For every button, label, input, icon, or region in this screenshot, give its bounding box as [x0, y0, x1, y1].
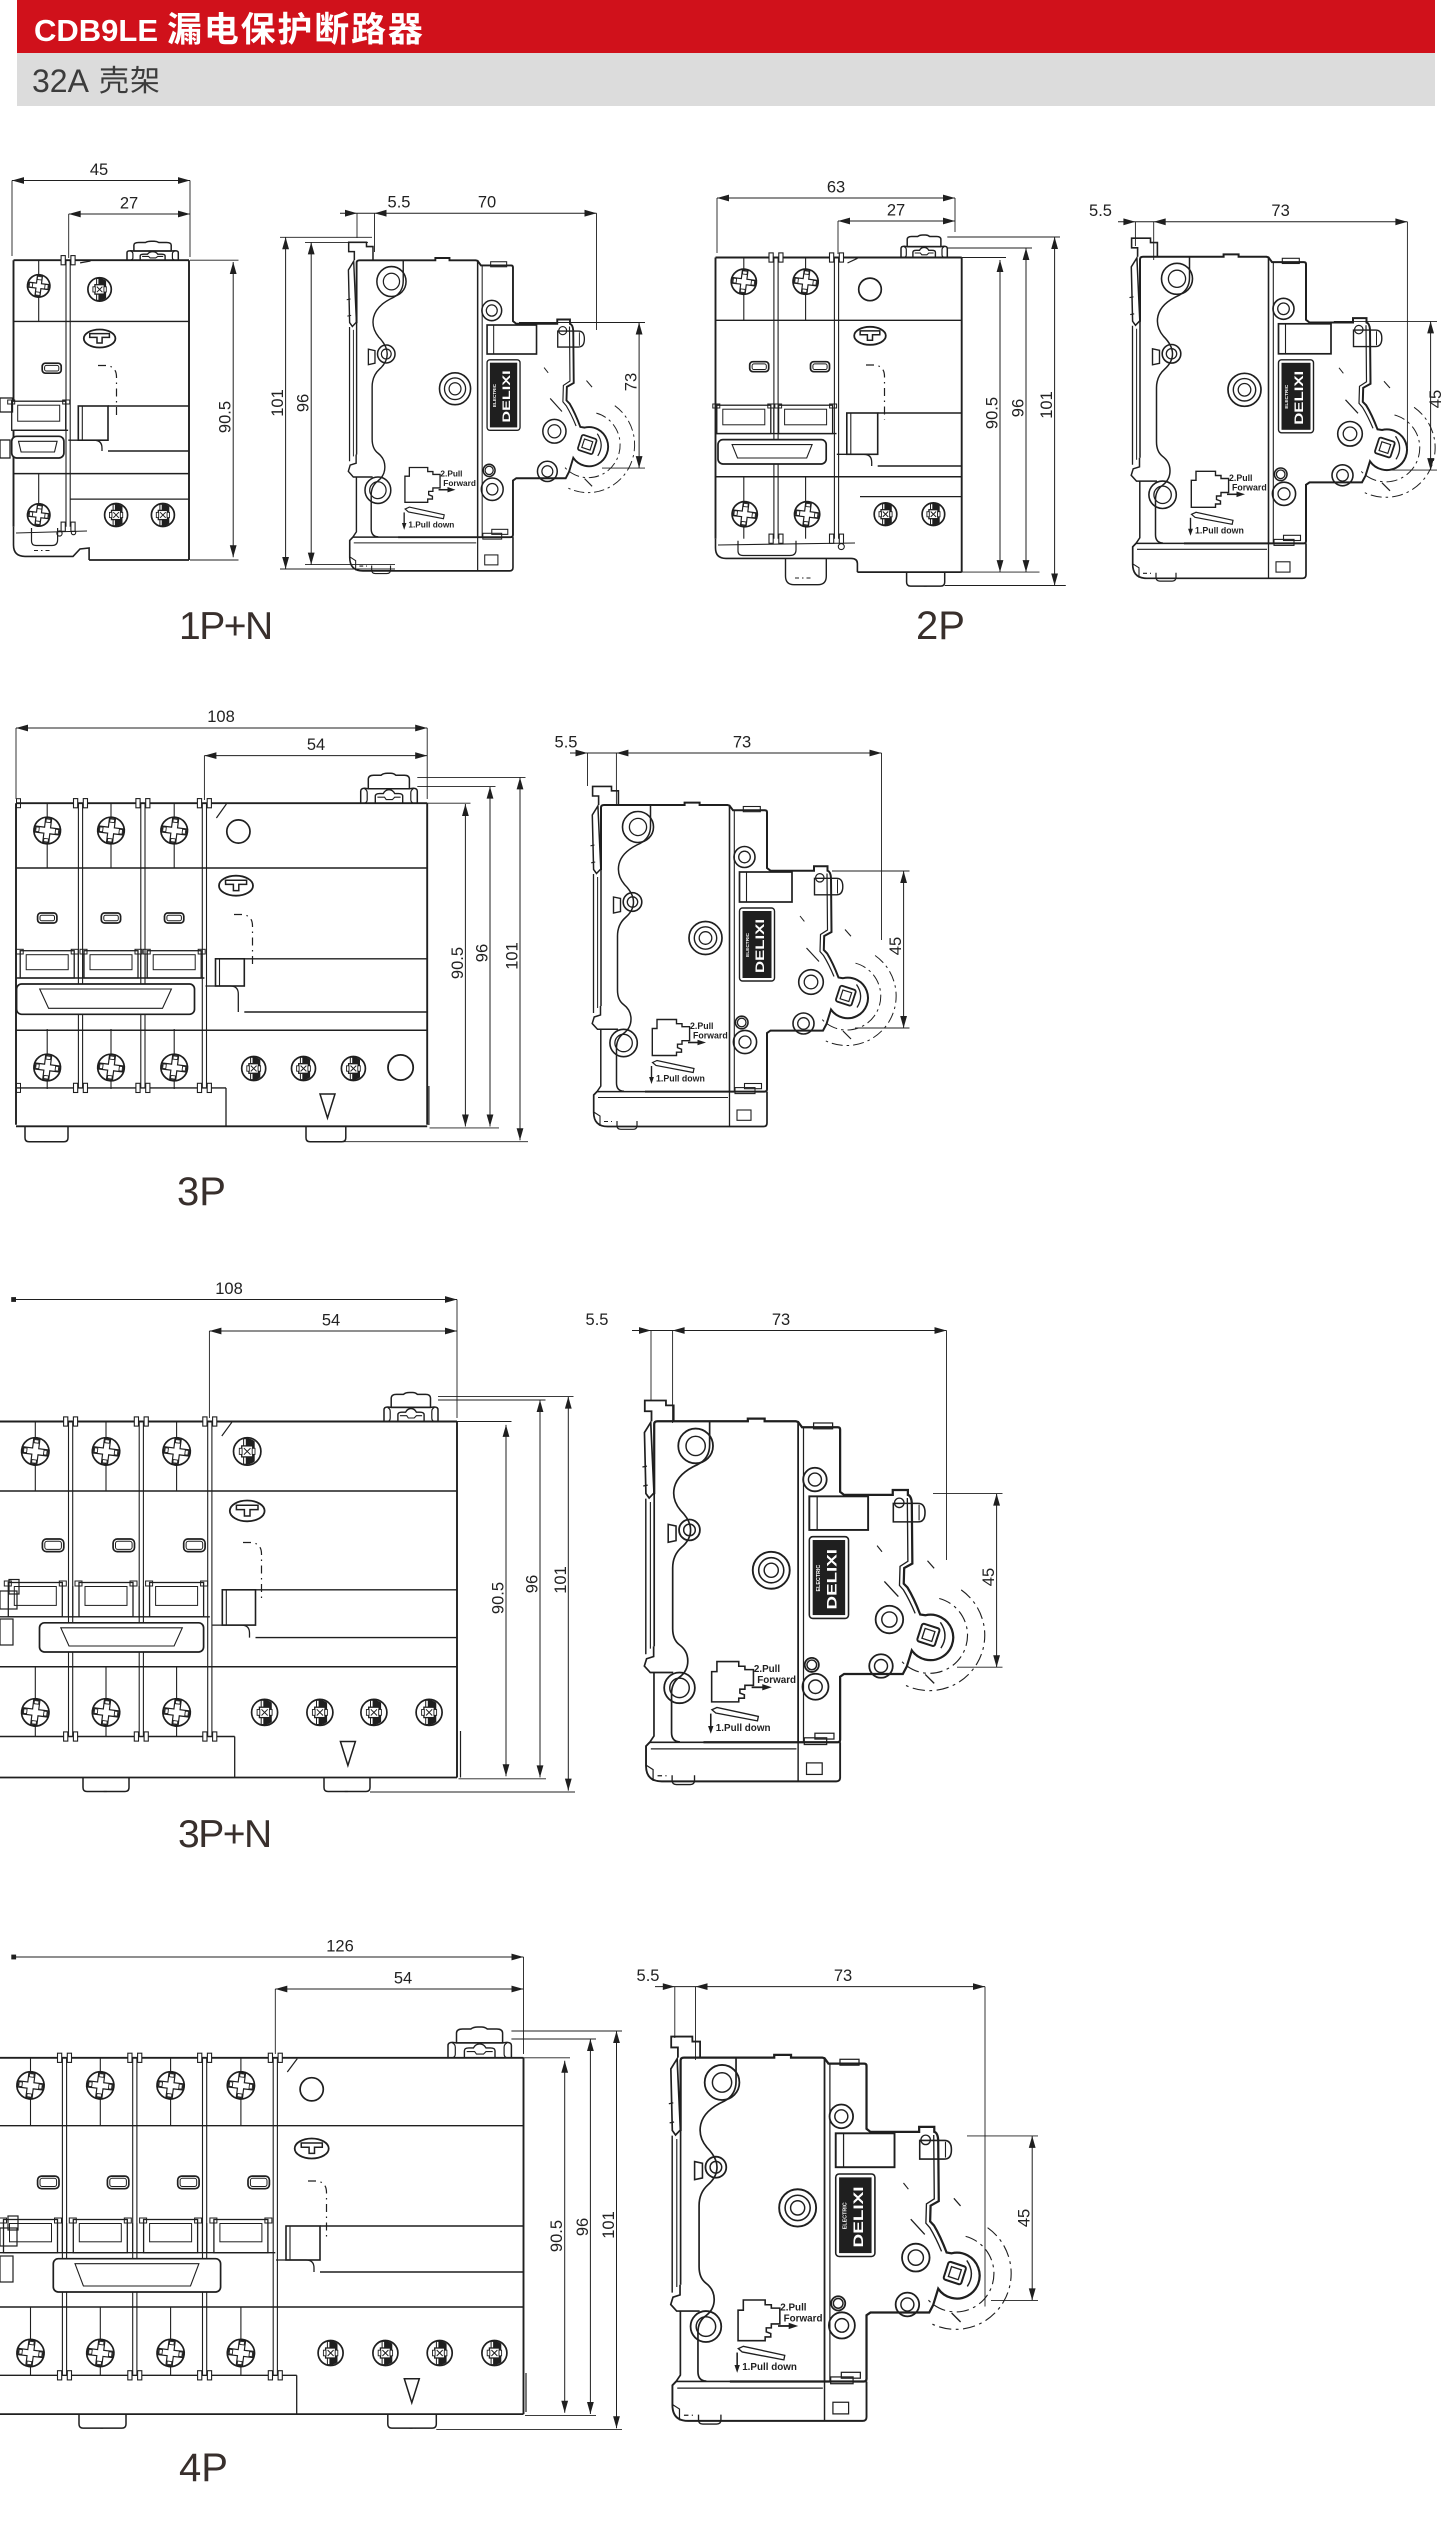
svg-text:DELIXI: DELIXI — [825, 1549, 840, 1609]
svg-text:108: 108 — [207, 708, 235, 726]
svg-text:27: 27 — [120, 195, 138, 213]
svg-text:5.5: 5.5 — [586, 1311, 609, 1329]
svg-text:2.Pull: 2.Pull — [754, 1664, 781, 1675]
svg-text:1.Pull down: 1.Pull down — [408, 519, 454, 529]
svg-text:3P+N: 3P+N — [178, 1813, 271, 1856]
svg-text:ELECTRIC: ELECTRIC — [816, 1565, 822, 1592]
svg-text:101: 101 — [269, 389, 287, 417]
svg-text:90.5: 90.5 — [449, 947, 467, 979]
svg-text:108: 108 — [215, 1280, 243, 1298]
svg-text:73: 73 — [623, 373, 641, 391]
svg-text:ELECTRIC: ELECTRIC — [842, 2202, 848, 2229]
svg-text:96: 96 — [574, 2218, 592, 2236]
svg-text:96: 96 — [474, 944, 492, 962]
svg-text:90.5: 90.5 — [548, 2220, 566, 2252]
svg-text:DELIXI: DELIXI — [753, 919, 767, 973]
svg-text:1.Pull down: 1.Pull down — [656, 1074, 705, 1084]
svg-text:70: 70 — [478, 194, 496, 212]
svg-text:Forward: Forward — [784, 2313, 823, 2324]
svg-text:45: 45 — [887, 937, 905, 955]
svg-text:101: 101 — [1038, 391, 1056, 419]
svg-text:54: 54 — [394, 1970, 412, 1988]
svg-text:1.Pull down: 1.Pull down — [716, 1723, 771, 1734]
svg-text:Forward: Forward — [757, 1675, 796, 1686]
svg-text:1P+N: 1P+N — [179, 605, 272, 648]
svg-text:DELIXI: DELIXI — [1292, 371, 1306, 425]
svg-text:45: 45 — [1427, 390, 1444, 408]
svg-text:Forward: Forward — [693, 1031, 728, 1041]
svg-text:96: 96 — [1010, 399, 1028, 417]
svg-text:Forward: Forward — [1232, 482, 1267, 492]
svg-text:101: 101 — [600, 2211, 618, 2239]
svg-text:2.Pull: 2.Pull — [1229, 473, 1252, 483]
svg-text:63: 63 — [827, 179, 845, 197]
svg-text:2.Pull: 2.Pull — [780, 2303, 807, 2314]
svg-text:Forward: Forward — [443, 478, 476, 488]
svg-text:5.5: 5.5 — [388, 194, 411, 212]
svg-text:101: 101 — [504, 942, 522, 970]
svg-text:ELECTRIC: ELECTRIC — [1284, 384, 1290, 409]
svg-text:27: 27 — [887, 202, 905, 220]
svg-text:73: 73 — [772, 1311, 790, 1329]
svg-text:45: 45 — [1016, 2209, 1034, 2227]
svg-text:2P: 2P — [916, 604, 965, 648]
svg-text:2.Pull: 2.Pull — [690, 1021, 713, 1031]
svg-text:90.5: 90.5 — [984, 397, 1002, 429]
svg-text:101: 101 — [552, 1566, 570, 1594]
svg-text:DELIXI: DELIXI — [851, 2186, 866, 2247]
svg-text:90.5: 90.5 — [490, 1582, 508, 1614]
svg-text:96: 96 — [524, 1575, 542, 1593]
svg-text:1.Pull down: 1.Pull down — [1195, 525, 1244, 535]
svg-text:1.Pull down: 1.Pull down — [742, 2362, 797, 2373]
svg-text:5.5: 5.5 — [637, 1967, 660, 1985]
svg-text:ELECTRIC: ELECTRIC — [492, 383, 497, 407]
svg-text:5.5: 5.5 — [555, 734, 578, 752]
svg-text:CDB9LE: CDB9LE — [34, 13, 158, 48]
svg-text:32A: 32A — [32, 63, 90, 99]
svg-text:96: 96 — [295, 394, 313, 412]
svg-text:73: 73 — [733, 734, 751, 752]
svg-text:ELECTRIC: ELECTRIC — [745, 932, 751, 957]
svg-text:3P: 3P — [177, 1170, 226, 1214]
svg-text:126: 126 — [326, 1938, 354, 1956]
svg-text:4P: 4P — [179, 2446, 228, 2490]
svg-text:73: 73 — [1271, 202, 1289, 220]
svg-text:45: 45 — [90, 161, 108, 179]
svg-text:54: 54 — [307, 736, 325, 754]
svg-text:73: 73 — [834, 1967, 852, 1985]
svg-text:90.5: 90.5 — [217, 401, 235, 433]
svg-text:54: 54 — [322, 1312, 340, 1330]
svg-text:DELIXI: DELIXI — [501, 370, 513, 422]
svg-text:45: 45 — [980, 1568, 998, 1586]
svg-text:5.5: 5.5 — [1089, 202, 1112, 220]
